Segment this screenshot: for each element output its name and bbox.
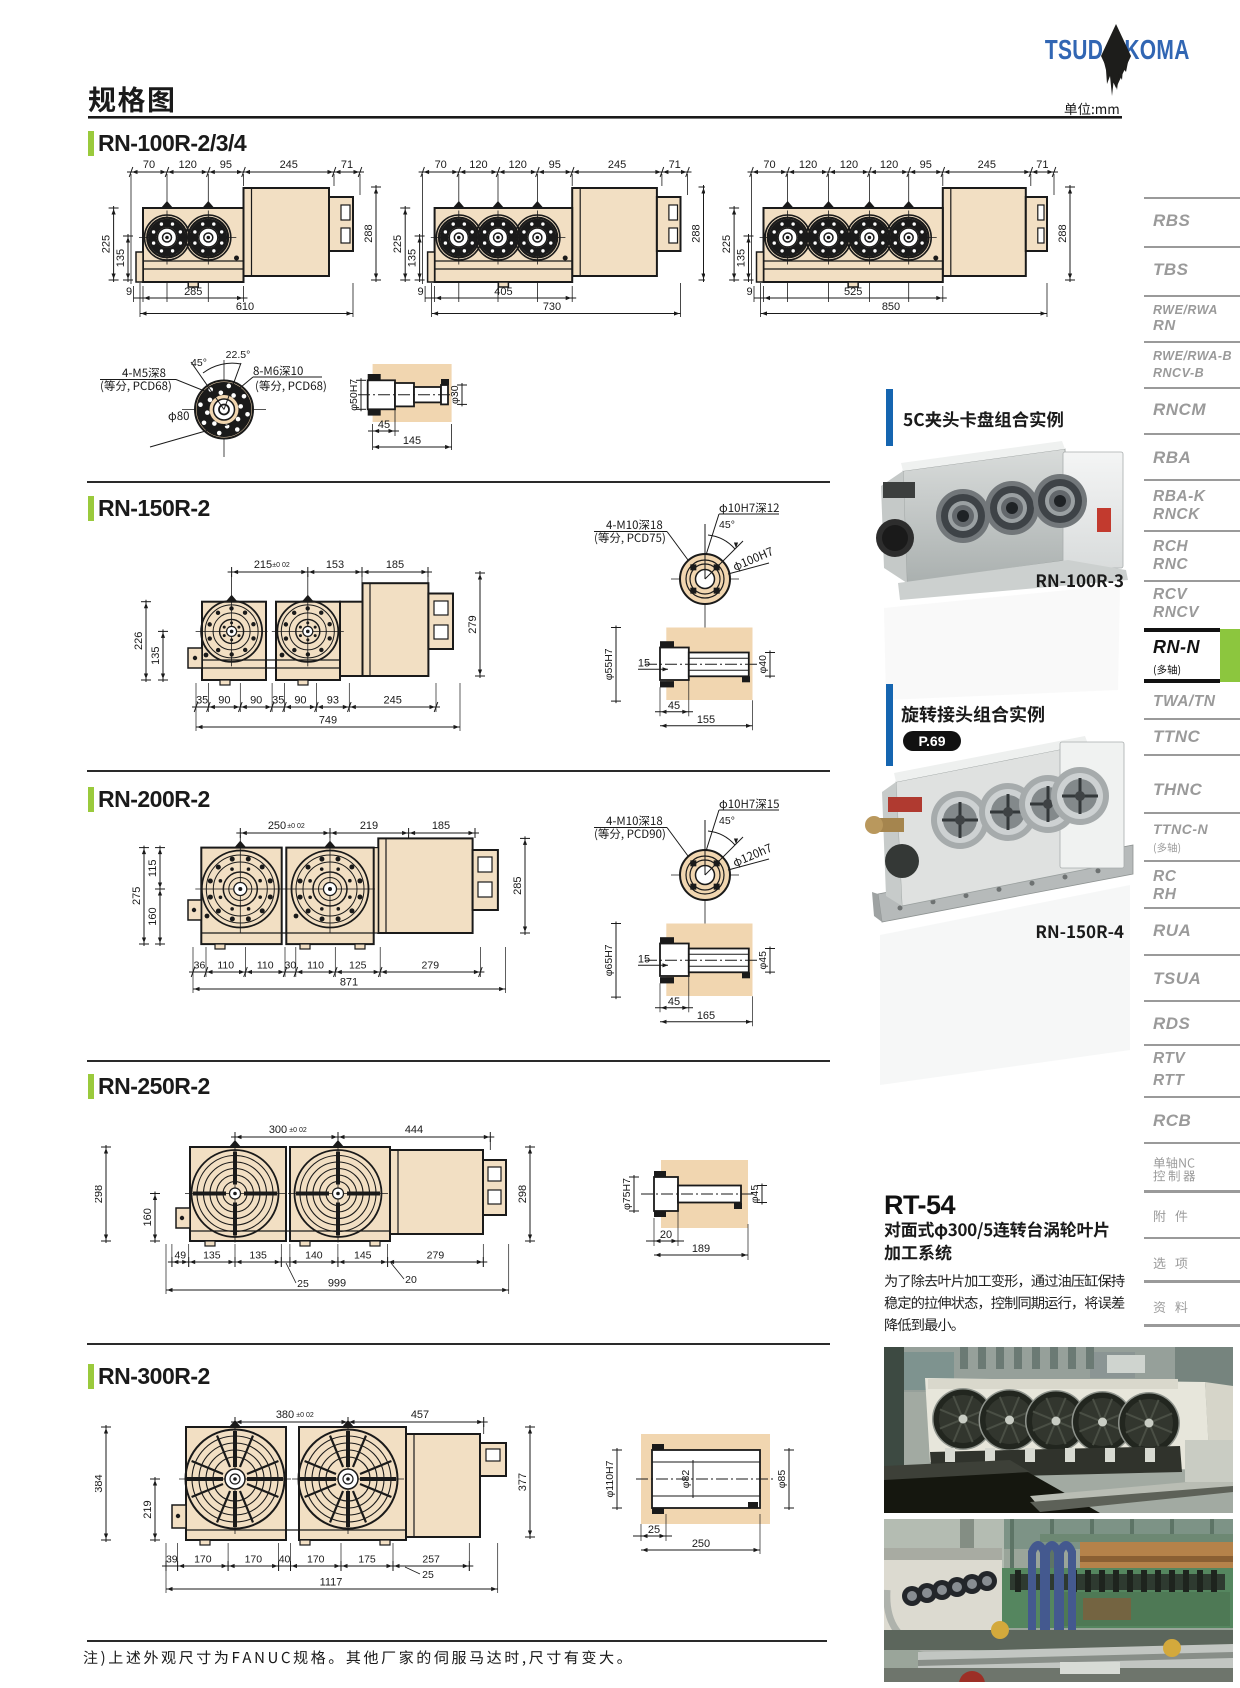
svg-text:871: 871	[340, 977, 358, 989]
svg-text:245: 245	[383, 695, 401, 707]
svg-text:110: 110	[307, 960, 324, 972]
svg-text:90: 90	[294, 695, 306, 707]
svg-text:9: 9	[126, 286, 132, 298]
svg-text:71: 71	[1036, 159, 1048, 171]
svg-text:730: 730	[543, 301, 561, 313]
svg-text:φ55H7: φ55H7	[603, 648, 615, 680]
svg-text:71: 71	[669, 159, 681, 171]
svg-text:70: 70	[143, 159, 155, 171]
svg-text:35: 35	[196, 695, 208, 707]
svg-text:φ85: φ85	[776, 1470, 788, 1489]
svg-text:25: 25	[297, 1278, 309, 1290]
svg-text:250: 250	[692, 1538, 710, 1550]
svg-text:70: 70	[435, 159, 447, 171]
svg-text:850: 850	[882, 301, 900, 313]
svg-text:±0 02: ±0 02	[272, 562, 290, 569]
svg-text:120: 120	[880, 159, 898, 171]
svg-text:90: 90	[218, 695, 230, 707]
svg-text:120: 120	[799, 159, 817, 171]
svg-text:30: 30	[285, 960, 297, 972]
svg-text:45°: 45°	[719, 815, 735, 827]
svg-text:165: 165	[697, 1010, 715, 1022]
svg-text:95: 95	[920, 159, 932, 171]
svg-text:36: 36	[194, 960, 206, 972]
svg-text:245: 245	[280, 159, 298, 171]
svg-text:45: 45	[378, 419, 390, 431]
svg-text:135: 135	[249, 1250, 267, 1262]
svg-text:279: 279	[422, 960, 440, 972]
svg-text:145: 145	[354, 1250, 372, 1262]
svg-text:35: 35	[272, 695, 284, 707]
svg-text:288: 288	[691, 224, 703, 242]
svg-text:95: 95	[220, 159, 232, 171]
svg-text:185: 185	[386, 559, 404, 571]
svg-text:φ82: φ82	[680, 1470, 692, 1489]
svg-text:999: 999	[328, 1278, 346, 1290]
svg-text:377: 377	[517, 1473, 529, 1491]
svg-text:49: 49	[174, 1250, 186, 1262]
svg-text:225: 225	[101, 235, 113, 253]
svg-text:160: 160	[142, 1208, 154, 1226]
svg-text:135: 135	[736, 249, 748, 267]
svg-text:120: 120	[840, 159, 858, 171]
svg-text:298: 298	[517, 1185, 529, 1203]
svg-text:170: 170	[307, 1554, 325, 1566]
svg-text:160: 160	[147, 907, 159, 925]
svg-text:215: 215	[254, 559, 272, 571]
svg-text:175: 175	[358, 1554, 376, 1566]
svg-text:90: 90	[250, 695, 262, 707]
svg-text:40: 40	[279, 1554, 291, 1566]
svg-text:110: 110	[217, 960, 234, 972]
svg-text:189: 189	[692, 1243, 710, 1255]
svg-text:93: 93	[327, 695, 339, 707]
svg-text:25: 25	[422, 1569, 434, 1581]
svg-text:20: 20	[660, 1229, 672, 1241]
svg-text:45: 45	[668, 700, 680, 712]
svg-text:9: 9	[746, 286, 752, 298]
svg-text:9: 9	[418, 286, 424, 298]
svg-text:610: 610	[236, 301, 254, 313]
svg-text:226: 226	[133, 632, 145, 650]
svg-text:φ45: φ45	[749, 1185, 761, 1204]
svg-text:225: 225	[393, 235, 404, 253]
svg-text:φ45: φ45	[757, 951, 769, 970]
svg-text:φ110H7: φ110H7	[604, 1460, 616, 1497]
svg-text:275: 275	[131, 887, 143, 905]
svg-text:140: 140	[305, 1250, 323, 1262]
svg-text:300: 300	[269, 1124, 287, 1136]
svg-text:457: 457	[411, 1409, 429, 1421]
svg-text:250: 250	[268, 820, 286, 832]
svg-text:±0 02: ±0 02	[296, 1412, 314, 1419]
svg-text:115: 115	[147, 860, 159, 878]
svg-text:φ40: φ40	[757, 655, 769, 674]
svg-text:257: 257	[422, 1554, 440, 1566]
svg-text:298: 298	[95, 1185, 105, 1203]
svg-text:145: 145	[403, 435, 421, 447]
svg-text:120: 120	[178, 159, 196, 171]
svg-text:225: 225	[722, 235, 733, 253]
svg-text:±0 02: ±0 02	[287, 823, 305, 830]
svg-text:15: 15	[638, 953, 650, 965]
svg-text:φ65H7: φ65H7	[603, 944, 615, 976]
svg-text:110: 110	[257, 960, 274, 972]
svg-text:KOMA: KOMA	[1124, 35, 1189, 65]
svg-text:384: 384	[95, 1474, 105, 1492]
svg-text:φ75H7: φ75H7	[621, 1178, 633, 1210]
svg-text:285: 285	[512, 877, 524, 895]
svg-text:71: 71	[341, 159, 353, 171]
svg-text:444: 444	[405, 1124, 423, 1136]
svg-text:45: 45	[668, 996, 680, 1008]
svg-text:25: 25	[648, 1524, 660, 1536]
svg-text:95: 95	[549, 159, 561, 171]
svg-text:245: 245	[608, 159, 626, 171]
svg-text:45°: 45°	[191, 357, 207, 369]
svg-text:15: 15	[638, 657, 650, 669]
svg-text:219: 219	[142, 1500, 154, 1518]
svg-text:135: 135	[115, 249, 127, 267]
svg-text:185: 185	[432, 820, 450, 832]
svg-text:749: 749	[319, 715, 337, 727]
svg-text:39: 39	[166, 1554, 178, 1566]
svg-text:380: 380	[276, 1409, 294, 1421]
svg-text:405: 405	[494, 286, 512, 298]
svg-text:279: 279	[427, 1250, 445, 1262]
svg-text:170: 170	[245, 1554, 263, 1566]
svg-text:153: 153	[326, 559, 344, 571]
svg-text:20: 20	[405, 1274, 417, 1286]
svg-text:125: 125	[349, 960, 367, 972]
svg-text:525: 525	[844, 286, 862, 298]
svg-text:φ50H7: φ50H7	[348, 379, 360, 411]
svg-text:219: 219	[360, 820, 378, 832]
svg-text:285: 285	[184, 286, 202, 298]
svg-text:279: 279	[467, 615, 479, 633]
svg-text:288: 288	[1057, 224, 1069, 242]
svg-text:1117: 1117	[320, 1577, 343, 1589]
svg-text:170: 170	[194, 1554, 212, 1566]
svg-text:135: 135	[407, 249, 419, 267]
svg-text:135: 135	[150, 647, 162, 665]
svg-text:288: 288	[363, 224, 375, 242]
svg-text:120: 120	[509, 159, 527, 171]
svg-text:155: 155	[697, 714, 715, 726]
svg-text:135: 135	[203, 1250, 221, 1262]
svg-text:70: 70	[763, 159, 775, 171]
svg-text:245: 245	[978, 159, 996, 171]
svg-text:±0 02: ±0 02	[289, 1127, 307, 1134]
svg-text:22.5°: 22.5°	[226, 349, 251, 361]
svg-text:45°: 45°	[719, 519, 735, 531]
svg-text:120: 120	[469, 159, 487, 171]
svg-text:TSUD: TSUD	[1045, 35, 1103, 65]
svg-text:φ30: φ30	[449, 385, 461, 404]
